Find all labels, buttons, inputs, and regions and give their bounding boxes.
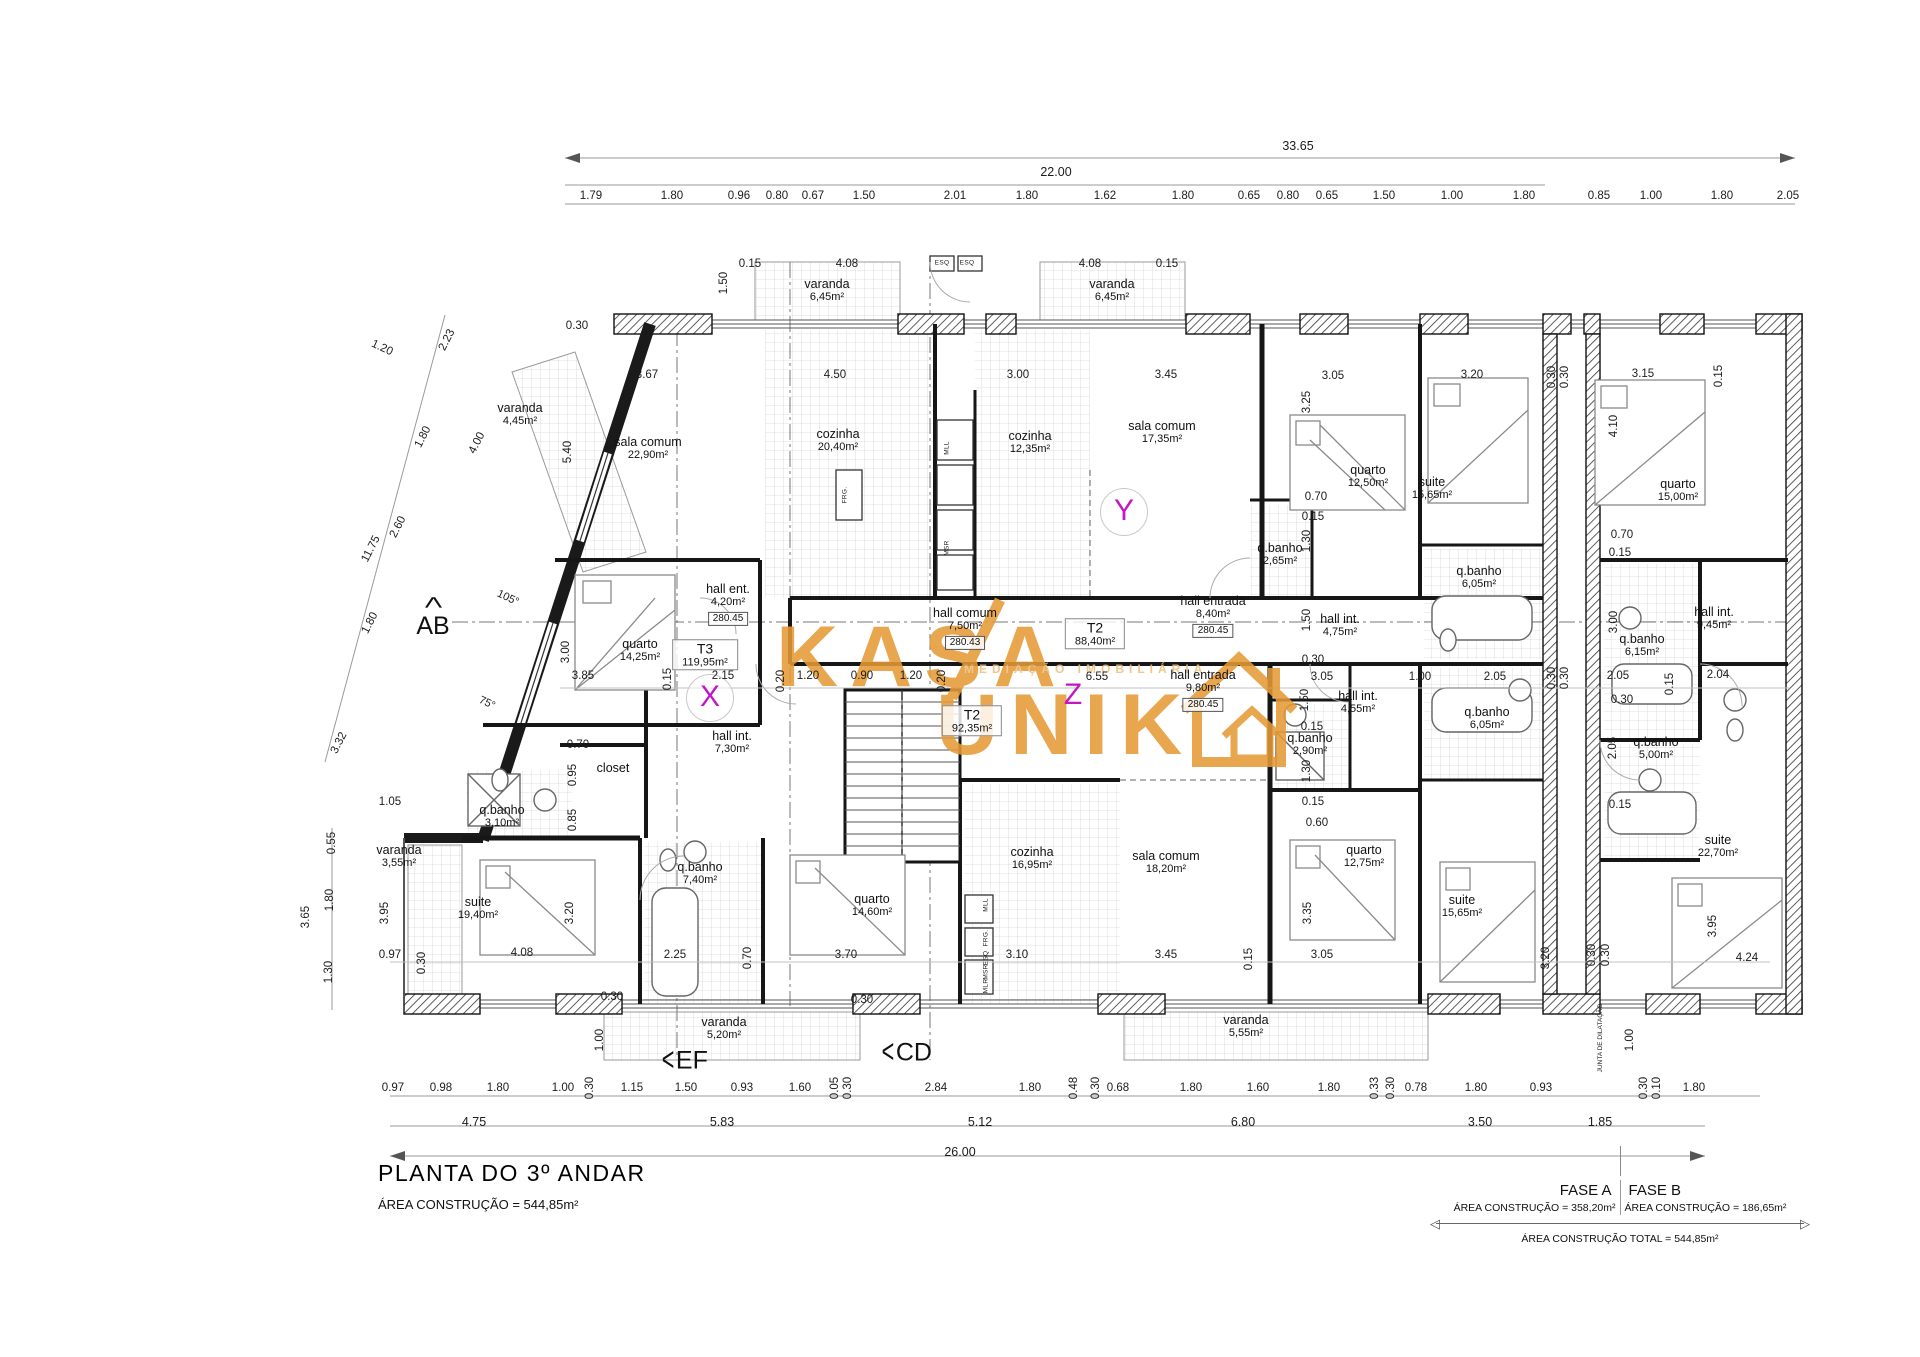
dimension-label: 0.30: [416, 952, 428, 974]
dimension-label: 3.32: [329, 730, 350, 755]
dimension-label: 0.68: [1107, 1082, 1129, 1094]
dimension-label: 0.30: [601, 991, 623, 1003]
unit-letter: Z: [1064, 678, 1082, 712]
dimension-label: 2.05: [1607, 670, 1629, 682]
dimension-label: 4.10: [1608, 415, 1620, 437]
room-name: closet: [597, 761, 630, 775]
room-area: 4,75m²: [1320, 626, 1360, 638]
room-area: 9,45m²: [1694, 619, 1734, 631]
dimension-label: 1.05: [379, 796, 401, 808]
phase-split-tick: [1620, 1146, 1621, 1176]
dimension-label: 0.15: [1664, 673, 1676, 695]
section-marker-cd: <CD: [880, 1037, 932, 1068]
dimension-label: 2.60: [388, 514, 409, 539]
dimension-label: 0.65: [1316, 190, 1338, 202]
dimension-label: 0.96: [728, 190, 750, 202]
dimension-label: 1.20: [369, 338, 394, 358]
dimension-label: 1.20: [900, 670, 922, 682]
dimension-label: 0.30: [1600, 944, 1612, 966]
room-label: hall entrada9,80m²280.45: [1170, 668, 1235, 712]
room-name: suite: [1698, 833, 1738, 847]
room-name: suite: [458, 895, 498, 909]
phase-extent-line: ◁ ▷: [1430, 1217, 1810, 1231]
dimension-label: 3.65: [300, 906, 312, 928]
dimension-label: 3.95: [1707, 915, 1719, 937]
room-area: 15,00m²: [1658, 491, 1698, 503]
room-area: 12,35m²: [1008, 443, 1051, 455]
dimension-label: 1.80: [1019, 1082, 1041, 1094]
dimension-label: 3.05: [1311, 949, 1333, 961]
dimension-label: 3.00: [560, 641, 572, 663]
room-area: 2,90m²: [1287, 745, 1332, 757]
dimension-label: 2.23: [437, 327, 458, 352]
room-label: hall int.4,75m²: [1320, 612, 1360, 638]
room-label: varanda5,20m²: [701, 1015, 746, 1041]
room-name: hall int.: [1320, 612, 1360, 626]
dimension-label: 2.84: [925, 1082, 947, 1094]
dimension-label: 3.20: [564, 902, 576, 924]
dimension-label: 3.00: [1608, 611, 1620, 633]
dimension-label: 1.50: [853, 190, 875, 202]
dimension-label: 2.05: [1484, 671, 1506, 683]
room-label: cozinha20,40m²: [816, 427, 859, 453]
room-label: sala comum17,35m²: [1128, 419, 1195, 445]
angle-label: 75°: [477, 694, 497, 712]
room-name: suite: [1412, 475, 1452, 489]
room-label: varanda6,45m²: [1089, 277, 1134, 303]
room-label: hall int.7,30m²: [712, 729, 752, 755]
level-badge: 280.45: [708, 612, 749, 625]
room-name: hall comum: [933, 606, 997, 620]
room-label: quarto12,50m²: [1348, 463, 1388, 489]
dimension-label: 0.30: [842, 1077, 854, 1099]
dimension-label: 1.80: [1683, 1082, 1705, 1094]
unit-tag: T288,40m²: [1065, 618, 1125, 649]
unit-tag: T292,35m²: [942, 705, 1002, 736]
room-name: q.banho: [479, 803, 524, 817]
dimension-label: 3.25: [1301, 391, 1313, 413]
dimension-label: 33.65: [1282, 139, 1313, 153]
dimension-label: 0.97: [379, 949, 401, 961]
dimension-label: 4.50: [824, 369, 846, 381]
dimension-label: 1.50: [675, 1082, 697, 1094]
dimension-label: 3.67: [636, 369, 658, 381]
dimension-label: 1.60: [789, 1082, 811, 1094]
appliance-label: MLL: [944, 441, 951, 455]
dimension-label: 0.30: [1586, 944, 1598, 966]
dimension-label: 1.00: [1409, 671, 1431, 683]
dimension-label: 1.60: [1247, 1082, 1269, 1094]
floor-plan-page: KASA MEDIAÇÃO IMOBILIÁRIA UNIK varanda4,…: [0, 0, 1920, 1357]
room-label: quarto12,75m²: [1344, 843, 1384, 869]
room-name: varanda: [497, 401, 542, 415]
room-name: q.banho: [677, 860, 722, 874]
dimension-label: 0.93: [731, 1082, 753, 1094]
dimension-label: 5.40: [562, 441, 574, 463]
room-label: q.banho3,10m²: [479, 803, 524, 829]
room-area: 4,55m²: [1338, 703, 1378, 715]
room-area: 6,45m²: [1089, 291, 1134, 303]
dimension-label: 0.15: [1609, 547, 1631, 559]
dimension-label: 5.83: [710, 1115, 734, 1129]
dimension-label: 3.50: [1468, 1115, 1492, 1129]
room-area: 12,50m²: [1348, 477, 1388, 489]
appliance-label: MLR: [983, 979, 990, 994]
room-label: suite15,65m²: [1412, 475, 1452, 501]
unit-letter: Y: [1100, 488, 1148, 536]
room-area: 17,35m²: [1128, 433, 1195, 445]
room-area: 12,75m²: [1344, 857, 1384, 869]
level-badge: 280.45: [1183, 698, 1224, 711]
room-area: 6,05m²: [1456, 578, 1501, 590]
room-label: q.banho2,65m²: [1257, 541, 1302, 567]
dimension-label: 1.00: [594, 1029, 606, 1051]
room-name: quarto: [620, 637, 660, 651]
room-name: varanda: [701, 1015, 746, 1029]
room-name: cozinha: [816, 427, 859, 441]
dimension-label: 0.30: [1546, 667, 1558, 689]
dimension-label: 0.98: [430, 1082, 452, 1094]
dimension-label: 3.45: [1155, 369, 1177, 381]
room-label: q.banho7,40m²: [677, 860, 722, 886]
dimension-label: 3.10: [1006, 949, 1028, 961]
dimension-label: 3.35: [1302, 902, 1314, 924]
dimension-label: 2.25: [664, 949, 686, 961]
dimension-label: 2.04: [1707, 669, 1729, 681]
dimension-label: 0.30: [1638, 1077, 1650, 1099]
room-area: 8,40m²: [1180, 608, 1245, 620]
dimension-label: 3.05: [1322, 370, 1344, 382]
room-area: 6,05m²: [1464, 719, 1509, 731]
room-label: closet: [597, 761, 630, 775]
dimension-label: 0.20: [775, 670, 787, 692]
dimension-label: 0.15: [662, 668, 674, 690]
dimension-label: 1.00: [1640, 190, 1662, 202]
dimension-label: 0.05: [829, 1077, 841, 1099]
dimension-label: 1.50: [718, 272, 730, 294]
room-area: 3,10m²: [479, 817, 524, 829]
dimension-label: 0.70: [1611, 529, 1633, 541]
room-label: quarto14,60m²: [852, 892, 892, 918]
room-label: suite15,65m²: [1442, 893, 1482, 919]
joint-label: JUNTA DE DILATAÇÃO: [1597, 1004, 1605, 1073]
room-area: 5,55m²: [1223, 1027, 1268, 1039]
dimension-label: 11.75: [359, 534, 382, 564]
section-marker-ef: <EF: [660, 1045, 708, 1076]
dimension-label: 0.30: [1546, 366, 1558, 388]
room-label: cozinha12,35m²: [1008, 429, 1051, 455]
appliance-label: FRG.: [983, 930, 990, 947]
room-name: quarto: [852, 892, 892, 906]
dimension-label: 0.65: [1238, 190, 1260, 202]
dimension-label: 2.05: [1777, 190, 1799, 202]
dimension-label: 0.30: [1385, 1077, 1397, 1099]
dimension-label: 0.30: [1090, 1077, 1102, 1099]
room-name: hall int.: [1338, 689, 1378, 703]
room-name: cozinha: [1008, 429, 1051, 443]
room-name: hall ent.: [706, 582, 750, 596]
dimension-label: 3.85: [572, 670, 594, 682]
dimension-label: 1.50: [1299, 689, 1311, 711]
dimension-label: 0.70: [742, 947, 754, 969]
dimension-label: 0.30: [1559, 667, 1571, 689]
dimension-label: 4.00: [467, 430, 488, 455]
dimension-label: 0.30: [1559, 366, 1571, 388]
dimension-label: 6.80: [1231, 1115, 1255, 1129]
dimension-label: 0.30: [851, 994, 873, 1006]
room-area: 14,60m²: [852, 906, 892, 918]
appliance-label: ESQ: [960, 260, 975, 267]
room-name: q.banho: [1257, 541, 1302, 555]
room-label: hall ent.4,20m²280.45: [706, 582, 750, 626]
appliance-label: ESQ: [935, 260, 950, 267]
room-name: varanda: [1223, 1013, 1268, 1027]
dimension-label: 3.15: [1632, 368, 1654, 380]
room-name: hall entrada: [1170, 668, 1235, 682]
room-label: q.banho6,05m²: [1464, 705, 1509, 731]
dimension-label: 1.80: [360, 610, 381, 635]
phase-total: ÁREA CONSTRUÇÃO TOTAL = 544,85m²: [1430, 1233, 1810, 1245]
level-badge: 280.45: [1193, 624, 1234, 637]
dimension-label: 0.90: [851, 670, 873, 682]
room-area: 7,50m²: [933, 620, 997, 632]
room-name: q.banho: [1619, 632, 1664, 646]
dimension-label: 1.00: [1441, 190, 1463, 202]
phase-table: FASE A FASE B ÁREA CONSTRUÇÃO = 358,20m²…: [1430, 1180, 1810, 1245]
room-area: 22,90m²: [614, 449, 681, 461]
dimension-label: 0.15: [1302, 796, 1324, 808]
unit-area: 119,95m²: [682, 657, 728, 669]
room-name: varanda: [1089, 277, 1134, 291]
section-caret-icon: <: [662, 1041, 675, 1080]
room-name: q.banho: [1633, 735, 1678, 749]
room-name: q.banho: [1464, 705, 1509, 719]
dimension-label: 1.15: [621, 1082, 643, 1094]
room-area: 4,20m²: [706, 596, 750, 608]
dimension-label: 0.93: [1530, 1082, 1552, 1094]
room-area: 7,30m²: [712, 743, 752, 755]
dimension-label: 0.85: [567, 809, 579, 831]
room-label: q.banho2,90m²: [1287, 731, 1332, 757]
room-area: 19,40m²: [458, 909, 498, 921]
dimension-label: 4.08: [836, 258, 858, 270]
room-label: q.banho6,05m²: [1456, 564, 1501, 590]
dimension-label: 1.80: [487, 1082, 509, 1094]
phase-arrow-right: ▷: [1800, 1216, 1810, 1232]
fase-b-label: FASE B: [1621, 1180, 1811, 1201]
dimension-label: 0.30: [566, 320, 588, 332]
unit-area: 88,40m²: [1075, 636, 1115, 648]
room-area: 3,55m²: [376, 857, 421, 869]
unit-type: T3: [682, 641, 728, 656]
unit-area: 92,35m²: [952, 723, 992, 735]
room-label: hall int.9,45m²: [1694, 605, 1734, 631]
dimension-label: 3.20: [1540, 947, 1552, 969]
dimension-label: 1.80: [1513, 190, 1535, 202]
room-name: suite: [1442, 893, 1482, 907]
dimension-label: 0.15: [1243, 948, 1255, 970]
dimension-label: 0.15: [739, 258, 761, 270]
room-label: varanda3,55m²: [376, 843, 421, 869]
dimension-label: 1.80: [324, 889, 336, 911]
dimension-label: 0.15: [1713, 365, 1725, 387]
room-name: hall int.: [1694, 605, 1734, 619]
room-label: sala comum18,20m²: [1132, 849, 1199, 875]
dimension-label: 1.80: [1711, 190, 1733, 202]
dimension-label: 1.80: [1318, 1082, 1340, 1094]
section-label: AB: [416, 612, 449, 640]
room-name: quarto: [1348, 463, 1388, 477]
room-name: varanda: [804, 277, 849, 291]
dimension-label: 2.05: [1607, 737, 1619, 759]
room-area: 6,15m²: [1619, 646, 1664, 658]
dimension-label: 0.15: [1302, 511, 1324, 523]
dimension-label: 0.78: [1405, 1082, 1427, 1094]
section-label: CD: [896, 1039, 932, 1067]
dimension-label: 0.20: [936, 670, 948, 692]
level-badge: 280.43: [945, 636, 986, 649]
room-label: hall int.4,55m²: [1338, 689, 1378, 715]
fase-a-area: ÁREA CONSTRUÇÃO = 358,20m²: [1430, 1201, 1621, 1215]
room-name: q.banho: [1456, 564, 1501, 578]
dimension-label: 1.00: [552, 1082, 574, 1094]
dimension-label: 1.80: [1016, 190, 1038, 202]
dimension-label: 1.50: [1373, 190, 1395, 202]
dimension-label: 0.60: [1306, 817, 1328, 829]
dimension-label: 1.00: [1624, 1029, 1636, 1051]
dimension-label: 1.85: [1588, 1115, 1612, 1129]
room-area: 14,25m²: [620, 651, 660, 663]
room-name: sala comum: [1132, 849, 1199, 863]
room-area: 15,65m²: [1442, 907, 1482, 919]
dimension-label: 1.62: [1094, 190, 1116, 202]
room-name: quarto: [1344, 843, 1384, 857]
room-area: 7,40m²: [677, 874, 722, 886]
dimension-label: 4.08: [1079, 258, 1101, 270]
room-label: cozinha16,95m²: [1010, 845, 1053, 871]
room-area: 2,65m²: [1257, 555, 1302, 567]
section-caret-icon: <: [414, 589, 453, 616]
dimension-label: 3.05: [1311, 671, 1333, 683]
dimension-label: 1.50: [1301, 609, 1313, 631]
dimension-label: 3.20: [1461, 369, 1483, 381]
dimension-label: 0.15: [1301, 721, 1323, 733]
angle-label: 105°: [495, 588, 521, 608]
dimension-label: 0.10: [1651, 1077, 1663, 1099]
room-label: quarto15,00m²: [1658, 477, 1698, 503]
room-label: hall entrada8,40m²280.45: [1180, 594, 1245, 638]
dimension-label: 3.00: [1007, 369, 1029, 381]
dimension-label: 1.30: [323, 961, 335, 983]
room-name: hall int.: [712, 729, 752, 743]
dimension-label: 3.45: [1155, 949, 1177, 961]
section-marker-ab: <AB: [416, 587, 449, 641]
page-title: PLANTA DO 3º ANDAR: [378, 1160, 646, 1187]
room-label: suite19,40m²: [458, 895, 498, 921]
room-name: hall entrada: [1180, 594, 1245, 608]
room-label: quarto14,25m²: [620, 637, 660, 663]
section-label: EF: [676, 1047, 708, 1075]
room-area: 5,00m²: [1633, 749, 1678, 761]
room-area: 16,95m²: [1010, 859, 1053, 871]
room-label: sala comum22,90m²: [614, 435, 681, 461]
room-name: cozinha: [1010, 845, 1053, 859]
room-area: 18,20m²: [1132, 863, 1199, 875]
dimension-label: 0.33: [1369, 1077, 1381, 1099]
room-name: sala comum: [614, 435, 681, 449]
appliance-label: FRG.: [842, 487, 849, 504]
dimension-label: 0.80: [766, 190, 788, 202]
dimension-label: 0.30: [584, 1077, 596, 1099]
dimension-label: 0.48: [1068, 1077, 1080, 1099]
dimension-label: 1.30: [1301, 530, 1313, 552]
room-area: 15,65m²: [1412, 489, 1452, 501]
dimension-label: 0.85: [1588, 190, 1610, 202]
room-name: sala comum: [1128, 419, 1195, 433]
room-label: varanda6,45m²: [804, 277, 849, 303]
dimension-label: 2.01: [944, 190, 966, 202]
dimension-label: 0.15: [1156, 258, 1178, 270]
unit-tag: T3119,95m²: [672, 639, 738, 670]
dimension-label: 1.20: [797, 670, 819, 682]
dimension-label: 0.97: [382, 1082, 404, 1094]
dimension-label: 1.80: [1465, 1082, 1487, 1094]
dimension-label: 0.70: [1305, 491, 1327, 503]
room-name: quarto: [1658, 477, 1698, 491]
room-label: hall comum7,50m²280.43: [933, 606, 997, 650]
dimension-label: 1.80: [1180, 1082, 1202, 1094]
room-label: varanda5,55m²: [1223, 1013, 1268, 1039]
room-area: 6,45m²: [804, 291, 849, 303]
dimension-label: 1.30: [1301, 760, 1313, 782]
dimension-label: 5.12: [968, 1115, 992, 1129]
room-label: q.banho6,15m²: [1619, 632, 1664, 658]
room-area: 22,70m²: [1698, 847, 1738, 859]
dimension-label: 2.15: [712, 670, 734, 682]
dimension-label: 0.30: [1611, 694, 1633, 706]
room-label: varanda4,45m²: [497, 401, 542, 427]
section-caret-icon: <: [882, 1033, 895, 1072]
dimension-label: 1.79: [580, 190, 602, 202]
dimension-label: 0.15: [1609, 799, 1631, 811]
fase-b-area: ÁREA CONSTRUÇÃO = 186,65m²: [1621, 1201, 1811, 1215]
appliance-label: MLL: [983, 898, 990, 912]
dimension-label: 22.00: [1040, 165, 1071, 179]
dimension-label: 4.08: [511, 947, 533, 959]
room-label: suite22,70m²: [1698, 833, 1738, 859]
room-area: 4,45m²: [497, 415, 542, 427]
dimension-label: 0.95: [567, 764, 579, 786]
unit-type: T2: [1075, 620, 1115, 635]
appliance-label: ESQ: [983, 951, 990, 966]
dimension-label: 0.70: [567, 739, 589, 751]
dimension-label: 0.30: [1302, 654, 1324, 666]
dimension-label: 0.67: [802, 190, 824, 202]
dimension-label: 1.80: [413, 424, 434, 449]
dimension-label: 26.00: [944, 1145, 975, 1159]
fase-a-label: FASE A: [1430, 1180, 1621, 1201]
room-name: varanda: [376, 843, 421, 857]
unit-type: T2: [952, 707, 992, 722]
dimension-label: 1.80: [1172, 190, 1194, 202]
room-area: 9,80m²: [1170, 682, 1235, 694]
room-area: 5,20m²: [701, 1029, 746, 1041]
phase-arrow-left: ◁: [1430, 1216, 1440, 1232]
dimension-label: 6.55: [1086, 671, 1108, 683]
dimension-label: 4.75: [462, 1115, 486, 1129]
dimension-label: 0.55: [326, 832, 338, 854]
title-block: PLANTA DO 3º ANDAR ÁREA CONSTRUÇÃO = 544…: [378, 1160, 646, 1212]
